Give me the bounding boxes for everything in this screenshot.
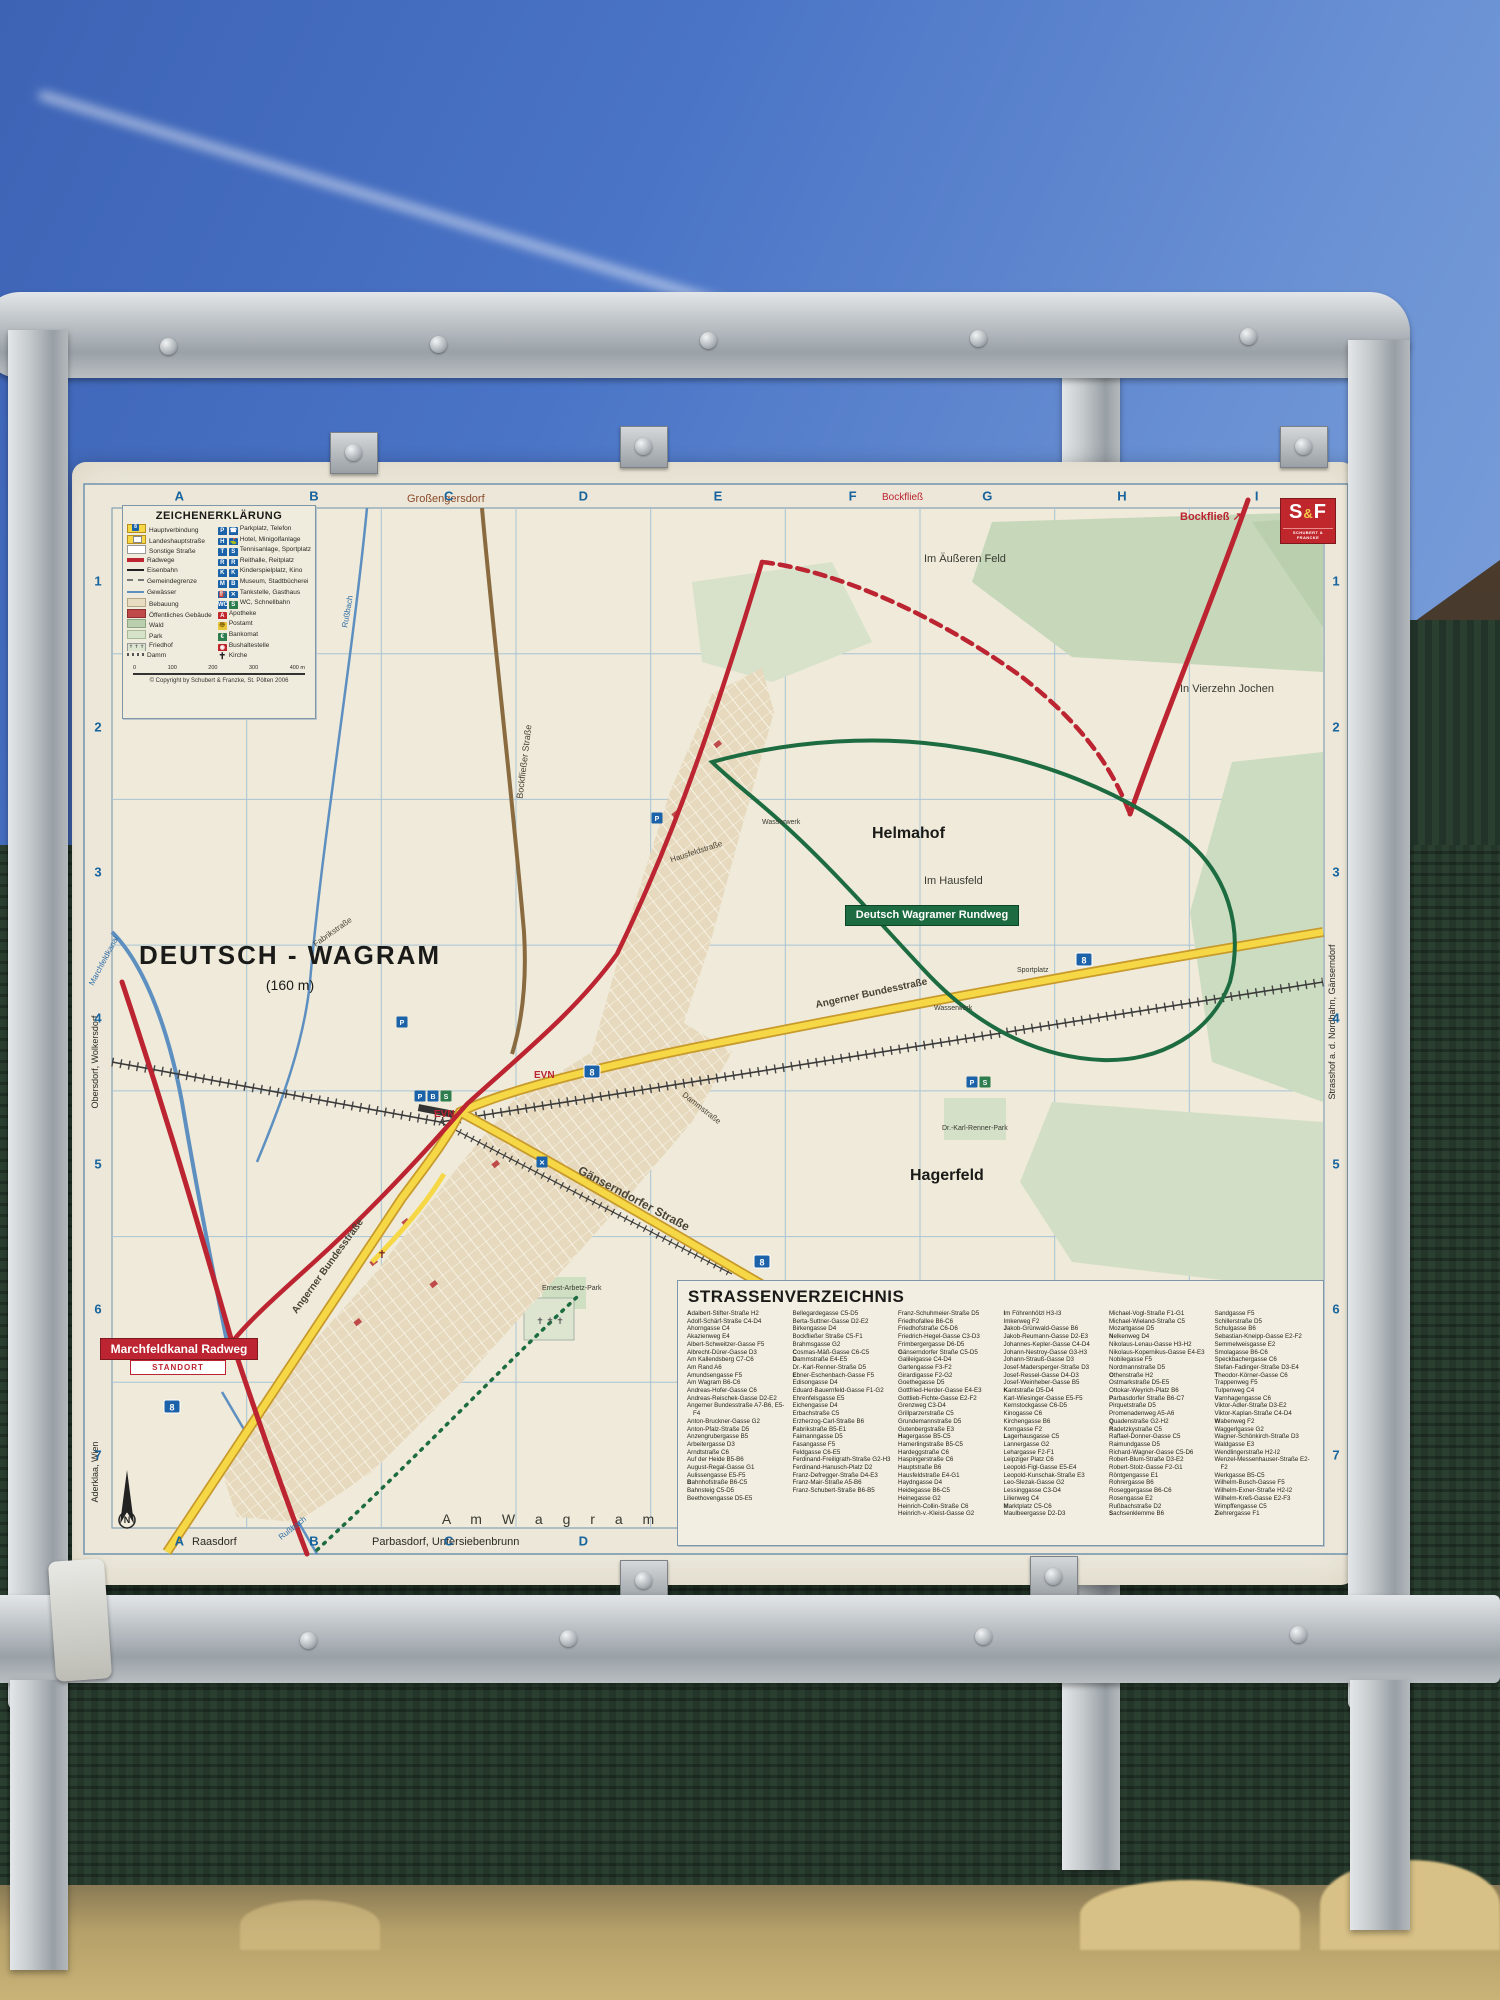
grid-label-7: 7 — [94, 1448, 101, 1463]
index-entry: Fasangasse F5 — [793, 1441, 893, 1449]
index-column: Bellegardegasse C5-D5Berta-Suttner-Gasse… — [790, 1310, 896, 1518]
poi-sportplatz: Sportplatz — [1017, 967, 1049, 974]
contrail — [37, 90, 766, 321]
index-entry: Grenzweg C3-D4 — [898, 1402, 998, 1410]
scale-tick: 200 — [208, 665, 217, 673]
index-entry: Franz-Schubert-Straße B6-B5 — [793, 1487, 893, 1495]
legend-item: Sonstige Straße — [127, 545, 218, 556]
bolt — [430, 336, 447, 353]
photo-of-map-sign: N 8888 PBSPPS✕P DEUTSCH - WAGRAM(160 m)H… — [0, 0, 1500, 2000]
index-entry: Marktplatz C5-C6 — [1004, 1503, 1104, 1511]
legend-item: Wald — [127, 619, 218, 630]
grid-label-5: 5 — [1332, 1156, 1339, 1171]
index-entry: Michael-Vogl-Straße F1-G1 — [1109, 1310, 1209, 1318]
index-entry: Gutenbergstraße E3 — [898, 1426, 998, 1434]
index-entry: Jakob-Grünwald-Gasse B6 — [1004, 1325, 1104, 1333]
district-helmahof: Helmahof — [872, 825, 946, 842]
index-entry: Erbachstraße C5 — [793, 1410, 893, 1418]
legend-icon: T — [218, 548, 227, 556]
grid-label-4: 4 — [94, 1011, 101, 1026]
index-entry: Radetzkystraße C5 — [1109, 1426, 1209, 1434]
index-entry: Am Wagram B6-C6 — [687, 1379, 787, 1387]
index-entry: Ostmarkstraße D5-E5 — [1109, 1379, 1209, 1387]
legend-icon: M — [218, 580, 227, 588]
legend-icon: € — [218, 633, 227, 641]
legend-icon: S — [229, 601, 238, 609]
index-entry: Gänserndorfer Straße C5-D5 — [898, 1349, 998, 1357]
index-entry: Rohrergasse B6 — [1109, 1479, 1209, 1487]
index-entry: Friedhofallee B6-C6 — [898, 1318, 998, 1326]
legend-icon: H — [218, 538, 227, 546]
index-entry: Ehrenfelsgasse E5 — [793, 1395, 893, 1403]
park-symbol — [127, 630, 146, 639]
fried-symbol — [127, 643, 146, 652]
legend-icon: R — [229, 559, 238, 567]
index-entry: Kirchengasse B6 — [1004, 1418, 1104, 1426]
grid-label-3: 3 — [1332, 865, 1339, 880]
index-entry: Josef-Weinheber-Gasse B5 — [1004, 1379, 1104, 1387]
index-entry: Franz-Mair-Straße A5-B6 — [793, 1479, 893, 1487]
sign-clamp — [620, 426, 668, 468]
grid-label-5: 5 — [94, 1156, 101, 1171]
index-entry: Roseggergasse B6-C6 — [1109, 1487, 1209, 1495]
index-entry: Heinegasse G2 — [898, 1495, 998, 1503]
index-entry: Birkengasse D4 — [793, 1325, 893, 1333]
legend-icon: R — [218, 559, 227, 567]
index-entry: Haydngasse D4 — [898, 1479, 998, 1487]
index-column: Im Föhrenhölzl H3-I3Imkerweg F2Jakob-Grü… — [1001, 1310, 1107, 1518]
damm-symbol — [127, 653, 144, 656]
index-entry: Gartengasse F3-F2 — [898, 1364, 998, 1372]
grid-label-E: E — [714, 489, 723, 504]
index-entry: Wilhelm-Exner-Straße H2-I2 — [1215, 1487, 1315, 1495]
other-symbol — [127, 545, 146, 554]
legend-icon: K — [229, 569, 238, 577]
frame-left-post-foot — [10, 1680, 68, 1970]
index-entry: Wimpffengasse C5 — [1215, 1503, 1315, 1511]
index-entry: Friedrich-Hegel-Gasse C3-D3 — [898, 1333, 998, 1341]
index-entry: Wenzel-Messenhauser-Straße E2-F2 — [1215, 1456, 1315, 1471]
legend-icon: 〠 — [218, 622, 227, 630]
index-entry: Am Kallendsberg C7-C6 — [687, 1356, 787, 1364]
index-entry: Rosengasse E2 — [1109, 1495, 1209, 1503]
legend-item: WCSWC, Schnellbahn — [218, 598, 311, 609]
index-entry: Wendlingerstraße H2-I2 — [1215, 1449, 1315, 1457]
index-entry: Anton-Pfalz-Straße D5 — [687, 1426, 787, 1434]
index-entry: Ottokar-Weyrich-Platz B6 — [1109, 1387, 1209, 1395]
grid-label-6: 6 — [94, 1302, 101, 1317]
index-entry: Angerner Bundesstraße A7-B6, E5-F4 — [687, 1402, 787, 1417]
index-entry: Haspingerstraße C6 — [898, 1456, 998, 1464]
index-entry: Galileigasse C4-D4 — [898, 1356, 998, 1364]
index-entry: Sachsenklemme B6 — [1109, 1510, 1209, 1518]
index-entry: Aulissengasse E5-F5 — [687, 1472, 787, 1480]
poi-icon-glyph: P — [655, 816, 660, 823]
grid-label-I: I — [1255, 489, 1259, 504]
index-entry: Anzengrubergasse B5 — [687, 1433, 787, 1441]
grid-label-2: 2 — [94, 719, 101, 734]
bolt — [1290, 1626, 1307, 1643]
index-entry: Albrecht-Dürer-Gasse D3 — [687, 1349, 787, 1357]
index-entry: Anton-Bruckner-Gasse G2 — [687, 1418, 787, 1426]
poi-icon-glyph: S — [444, 1094, 449, 1101]
index-entry: Akazienweg E4 — [687, 1333, 787, 1341]
index-entry: Raffael-Donner-Gasse C5 — [1109, 1433, 1209, 1441]
legend-icon: ⛳ — [229, 538, 238, 546]
index-entry: Eichengasse D4 — [793, 1402, 893, 1410]
index-entry: Girardigasse F2-G2 — [898, 1372, 998, 1380]
grid-label-D: D — [579, 1534, 588, 1549]
index-entry: Werkgasse B5-C5 — [1215, 1472, 1315, 1480]
legend-box: ZEICHENERKLÄRUNG HauptverbindungLandesha… — [122, 505, 316, 719]
beb-symbol — [127, 598, 146, 607]
grid-label-A: A — [175, 489, 184, 504]
poi-icon-glyph: ✕ — [539, 1160, 545, 1167]
wat-symbol — [127, 591, 144, 593]
sign-clamp — [1280, 426, 1328, 468]
frame-left-post — [8, 330, 68, 1710]
index-entry: Andreas-Hofer-Gasse C6 — [687, 1387, 787, 1395]
legend-item: Öffentliches Gebäude — [127, 609, 218, 620]
wald-symbol — [127, 619, 146, 628]
frame-right-post-foot — [1350, 1680, 1410, 1930]
index-entry: Cosmas-Mäß-Gasse C6-C5 — [793, 1349, 893, 1357]
index-entry: Nikolaus-Lenau-Gasse H3-H2 — [1109, 1341, 1209, 1349]
bolt — [560, 1630, 577, 1647]
grid-label-A: A — [175, 1534, 184, 1549]
legend-item: Bebauung — [127, 598, 218, 609]
index-entry: Hausfeldstraße E4-G1 — [898, 1472, 998, 1480]
copyright-note: © Copyright by Schubert & Franzke, St. P… — [123, 678, 315, 684]
legend-item: Damm — [127, 651, 218, 662]
index-entry: Dammstraße E4-E5 — [793, 1356, 893, 1364]
rail-symbol — [127, 569, 144, 571]
town-title: DEUTSCH - WAGRAM — [139, 940, 441, 970]
marchfeldkanal-radweg-badge: Marchfeldkanal Radweg — [100, 1338, 258, 1360]
index-entry: Gottfried-Herder-Gasse E4-E3 — [898, 1387, 998, 1395]
index-column: Franz-Schuhmeier-Straße D5Friedhofallee … — [895, 1310, 1001, 1518]
poi-icon-glyph: P — [970, 1080, 975, 1087]
road-shield-number: 8 — [1081, 956, 1086, 966]
index-entry: Sebastian-Kneipp-Gasse E2-F2 — [1215, 1333, 1315, 1341]
index-entry: Grundemannstraße D5 — [898, 1418, 998, 1426]
index-entry: Raimundgasse D5 — [1109, 1441, 1209, 1449]
index-entry: Johann-Nestroy-Gasse G3-H3 — [1004, 1349, 1104, 1357]
poi-karl-renner-park: Dr.-Karl-Renner-Park — [942, 1125, 1008, 1132]
index-entry: Frimbergergasse D6-D5 — [898, 1341, 998, 1349]
poi-wasserwerk-2: Wasserwerk — [934, 1005, 973, 1012]
index-entry: Ziehrergasse F1 — [1215, 1510, 1315, 1518]
grid-label-C: C — [444, 1534, 453, 1549]
index-entry: Johann-Strauß-Gasse D3 — [1004, 1356, 1104, 1364]
index-entry: Heidegasse B6-C5 — [898, 1487, 998, 1495]
index-entry: Auf der Heide B5-B6 — [687, 1456, 787, 1464]
poi-ernest-arbetz-park: Ernest-Arbetz-Park — [542, 1285, 602, 1292]
poi-icon-glyph: P — [400, 1020, 405, 1027]
bolt — [700, 332, 717, 349]
legend-item: Gemeindegrenze — [127, 577, 218, 588]
publisher-logo: S&F SCHUBERT & FRANCKE — [1280, 498, 1336, 544]
index-entry: Röntgengasse E1 — [1109, 1472, 1209, 1480]
index-entry: Viktor-Kaplan-Straße C4-D4 — [1215, 1410, 1315, 1418]
index-entry: Sandgasse F5 — [1215, 1310, 1315, 1318]
index-entry: Amundsengasse F5 — [687, 1372, 787, 1380]
poi-evn-1: EVN — [534, 1070, 555, 1081]
index-entry: Franz-Schuhmeier-Straße D5 — [898, 1310, 998, 1318]
area-in-vierzehn-jochen: In Vierzehn Jochen — [1180, 683, 1274, 695]
index-entry: Friedhofstraße C6-D6 — [898, 1325, 998, 1333]
grid-label-1: 1 — [1332, 573, 1339, 588]
street-index-title: STRASSENVERZEICHNIS — [688, 1287, 1313, 1307]
index-entry: Promenadenweg A5-A6 — [1109, 1410, 1209, 1418]
grid-label-F: F — [849, 489, 857, 504]
grass-tuft — [240, 1900, 380, 1950]
poi-icon-glyph: S — [983, 1080, 988, 1087]
index-entry: Hardeggstraße C6 — [898, 1449, 998, 1457]
legend-item: 〠Postamt — [218, 619, 311, 630]
legend-icon: WC — [218, 601, 227, 609]
index-entry: Josef-Madersperger-Straße D3 — [1004, 1364, 1104, 1372]
legend-left-column: HauptverbindungLandeshauptstraßeSonstige… — [127, 524, 218, 662]
index-entry: Josef-Ressel-Gasse D4-D3 — [1004, 1372, 1104, 1380]
index-entry: Michael-Wieland-Straße C5 — [1109, 1318, 1209, 1326]
index-entry: Am Rand A6 — [687, 1364, 787, 1372]
bolt — [975, 1628, 992, 1645]
index-entry: Adolf-Schärf-Straße C4-D4 — [687, 1318, 787, 1326]
poi-kirche-cross: ✝ — [377, 1249, 386, 1261]
legend-item: MBMuseum, Stadtbücherei — [218, 577, 311, 588]
grid-label-D: D — [579, 489, 588, 504]
index-entry: Speckbachergasse C6 — [1215, 1356, 1315, 1364]
rundweg-badge: Deutsch Wagramer Rundweg — [845, 905, 1019, 926]
index-entry: Brahmsgasse G2 — [793, 1341, 893, 1349]
index-entry: Leipziger Platz C6 — [1004, 1456, 1104, 1464]
scale-tick: 300 — [249, 665, 258, 673]
legend-item: AApotheke — [218, 609, 311, 620]
index-entry: Hagergasse B5-C5 — [898, 1433, 998, 1441]
district-hagerfeld: Hagerfeld — [910, 1167, 984, 1184]
legend-right-column: P☎Parkplatz, TelefonH⛳Hotel, Minigolfanl… — [218, 524, 311, 662]
grid-label-B: B — [309, 1534, 318, 1549]
grid-label-4: 4 — [1332, 1011, 1339, 1026]
index-entry: Wilhelm-Busch-Gasse F5 — [1215, 1479, 1315, 1487]
index-entry: Nordmannstraße D5 — [1109, 1364, 1209, 1372]
index-entry: Feldgasse C6-E5 — [793, 1449, 893, 1457]
legend-icon: B — [229, 580, 238, 588]
index-entry: Beethovengasse D5-E5 — [687, 1495, 787, 1503]
legend-icon: ◉ — [218, 644, 227, 652]
index-entry: Pirquetstraße D5 — [1109, 1402, 1209, 1410]
index-column: Sandgasse F5Schillerstraße D5Schulgasse … — [1212, 1310, 1318, 1518]
scale-tick: 400 m — [290, 665, 305, 673]
bolt — [1240, 328, 1257, 345]
index-entry: Lessinggasse C3-D4 — [1004, 1487, 1104, 1495]
sign-clamp — [330, 432, 378, 474]
legend-item: Landeshauptstraße — [127, 535, 218, 546]
index-entry: Theodor-Körner-Gasse C6 — [1215, 1372, 1315, 1380]
lh-symbol — [127, 535, 146, 544]
index-entry: August-Regal-Gasse G1 — [687, 1464, 787, 1472]
index-entry: Kantstraße D5-D4 — [1004, 1387, 1104, 1395]
index-entry: Andreas-Reischek-Gasse D2-E2 — [687, 1395, 787, 1403]
grass-tuft — [1080, 1880, 1300, 1950]
bolt — [970, 330, 987, 347]
area-am-wagram: A m W a g r a m — [442, 1511, 662, 1527]
index-entry: Jakob-Reumann-Gasse D2-E3 — [1004, 1333, 1104, 1341]
street-index-columns: Adalbert-Stifter-Straße H2Adolf-Schärf-S… — [678, 1310, 1323, 1518]
index-entry: Bockfließer Straße C5-F1 — [793, 1333, 893, 1341]
index-entry: Gottlieb-Fichte-Gasse E2-F2 — [898, 1395, 998, 1403]
legend-item: P☎Parkplatz, Telefon — [218, 524, 311, 535]
grid-label-6: 6 — [1332, 1302, 1339, 1317]
index-entry: Schillerstraße D5 — [1215, 1318, 1315, 1326]
dest-bockfliess-ne: Bockfließ ↗ — [1180, 511, 1242, 523]
index-entry: Korngasse F2 — [1004, 1426, 1104, 1434]
legend-item: RRReithalle, Reitplatz — [218, 556, 311, 567]
index-entry: Nelkenweg D4 — [1109, 1333, 1209, 1341]
index-entry: Wagner-Schönkirch-Straße D3 — [1215, 1433, 1315, 1441]
white-wrap-on-post — [48, 1558, 112, 1682]
index-entry: Wilhelm-Kreß-Gasse E2-F3 — [1215, 1495, 1315, 1503]
index-entry: Ebner-Eschenbach-Gasse F5 — [793, 1372, 893, 1380]
index-entry: Bellegardegasse C5-D5 — [793, 1310, 893, 1318]
legend-icon: ⛽ — [218, 591, 227, 599]
index-entry: Lilienweg C4 — [1004, 1495, 1104, 1503]
legend-item: KKKinderspielplatz, Kino — [218, 566, 311, 577]
scale-tick: 0 — [133, 665, 136, 673]
main-symbol — [127, 524, 146, 533]
legend-item: Friedhof — [127, 641, 218, 652]
index-entry: Goethegasse D5 — [898, 1379, 998, 1387]
index-entry: Richard-Wagner-Gasse C5-D6 — [1109, 1449, 1209, 1457]
index-entry: Ferdinand-Freiligrath-Straße G2-H3 — [793, 1456, 893, 1464]
index-entry: Robert-Blum-Straße D3-E2 — [1109, 1456, 1209, 1464]
index-entry: Karl-Wiesinger-Gasse E5-F5 — [1004, 1395, 1104, 1403]
index-entry: Erzherzog-Carl-Straße B6 — [793, 1418, 893, 1426]
pub-symbol — [127, 609, 146, 618]
road-shield-number: 8 — [169, 1403, 174, 1413]
index-entry: Ferdinand-Hanusch-Platz D2 — [793, 1464, 893, 1472]
legend-item: H⛳Hotel, Minigolfanlage — [218, 535, 311, 546]
map-sign-board: N 8888 PBSPPS✕P DEUTSCH - WAGRAM(160 m)H… — [72, 462, 1355, 1585]
index-entry: Quadenstraße G2-H2 — [1109, 1418, 1209, 1426]
grid-label-2: 2 — [1332, 719, 1339, 734]
index-entry: Tulpenweg C4 — [1215, 1387, 1315, 1395]
frame-right-post — [1348, 340, 1410, 1710]
legend-item: ⛽✕Tankstelle, Gasthaus — [218, 588, 311, 599]
index-entry: Edisongasse D4 — [793, 1379, 893, 1387]
index-entry: Nikolaus-Kopernikus-Gasse E4-E3 — [1109, 1349, 1209, 1357]
index-entry: Nobilegasse F5 — [1109, 1356, 1209, 1364]
frame-bottom-bar — [0, 1595, 1500, 1683]
index-entry: Grillparzerstraße C5 — [898, 1410, 998, 1418]
grid-label-3: 3 — [94, 865, 101, 880]
poi-wasserwerk-1: Wasserwerk — [762, 819, 801, 826]
index-entry: Albert-Schweitzer-Gasse F5 — [687, 1341, 787, 1349]
index-entry: Rußbachstraße D2 — [1109, 1503, 1209, 1511]
sign-clamp — [1030, 1556, 1078, 1598]
poi-evn-2: EVN — [434, 1109, 455, 1120]
index-entry: Berta-Suttner-Gasse D2-E2 — [793, 1318, 893, 1326]
road-shield-number: 8 — [759, 1258, 764, 1268]
grid-label-C: C — [444, 489, 453, 504]
legend-item: €Bankomat — [218, 630, 311, 641]
area-im-hausfeld: Im Hausfeld — [924, 875, 983, 887]
legend-icon: ☎ — [229, 527, 238, 535]
legend-icon: A — [218, 612, 227, 620]
index-entry: Heinrich-v.-Kleist-Gasse G2 — [898, 1510, 998, 1518]
grid-label-B: B — [309, 489, 318, 504]
index-entry: Maulbeergasse D2-D3 — [1004, 1510, 1104, 1518]
index-entry: Lagerhausgasse C5 — [1004, 1433, 1104, 1441]
legend-item: Hauptverbindung — [127, 524, 218, 535]
legend-item: TSTennisanlage, Sportplatz — [218, 545, 311, 556]
scale-bar: 0100200300400 m — [133, 665, 305, 675]
index-entry: Othenstraße H2 — [1109, 1372, 1209, 1380]
index-entry: Waggerlgasse G2 — [1215, 1426, 1315, 1434]
index-column: Michael-Vogl-Straße F1-G1Michael-Wieland… — [1106, 1310, 1212, 1518]
road-shield-number: 8 — [589, 1068, 594, 1078]
index-entry: Wabenweg F2 — [1215, 1418, 1315, 1426]
rad-symbol — [127, 558, 144, 562]
standort-badge: STANDORT — [130, 1360, 226, 1375]
legend-item: Eisenbahn — [127, 566, 218, 577]
grid-label-G: G — [982, 489, 992, 504]
index-entry: Stefan-Fadinger-Straße D3-E4 — [1215, 1364, 1315, 1372]
legend-title: ZEICHENERKLÄRUNG — [123, 510, 315, 522]
index-entry: Semmelweisgasse E2 — [1215, 1341, 1315, 1349]
index-entry: Ahorngasse C4 — [687, 1325, 787, 1333]
index-entry: Hamerlingstraße B5-C5 — [898, 1441, 998, 1449]
legend-item: ◉Bushaltestelle — [218, 641, 311, 652]
index-entry: Mozartgasse D5 — [1109, 1325, 1209, 1333]
index-entry: Kinogasse C6 — [1004, 1410, 1104, 1418]
legend-item: Radwege — [127, 556, 218, 567]
grid-numbers-right: 1234567 — [1324, 508, 1348, 1528]
index-entry: Hauptstraße B6 — [898, 1464, 998, 1472]
grid-label-7: 7 — [1332, 1448, 1339, 1463]
index-entry: Smolagasse B6-C6 — [1215, 1349, 1315, 1357]
index-entry: Franz-Defregger-Straße D4-E3 — [793, 1472, 893, 1480]
legend-icon: P — [218, 527, 227, 535]
legend-item: Park — [127, 630, 218, 641]
publisher-logo-letters: S&F — [1281, 499, 1335, 527]
index-entry: Faimanngasse D5 — [793, 1433, 893, 1441]
grass-tuft — [1320, 1860, 1500, 1950]
poi-icon-glyph: B — [430, 1094, 435, 1101]
index-entry: Johannes-Kepler-Gasse C4-D4 — [1004, 1341, 1104, 1349]
index-entry: Eduard-Bauernfeld-Gasse F1-G2 — [793, 1387, 893, 1395]
legend-icon: S — [229, 548, 238, 556]
legend-item: ✝Kirche — [218, 651, 311, 662]
index-entry: Viktor-Adler-Straße D3-E2 — [1215, 1402, 1315, 1410]
index-entry: Bahnhofstraße B6-C5 — [687, 1479, 787, 1487]
svg-text:N: N — [124, 1515, 131, 1525]
index-entry: Varnhagengasse C6 — [1215, 1395, 1315, 1403]
index-entry: Imkerweg F2 — [1004, 1318, 1104, 1326]
legend-icon: K — [218, 569, 227, 577]
legend-icon: ✕ — [229, 591, 238, 599]
publisher-name: SCHUBERT & FRANCKE — [1283, 528, 1333, 540]
index-entry: Schulgasse B6 — [1215, 1325, 1315, 1333]
street-index-box: STRASSENVERZEICHNIS Adalbert-Stifter-Str… — [677, 1280, 1324, 1546]
grid-numbers-left: 1234567 — [84, 508, 112, 1528]
index-entry: Adalbert-Stifter-Straße H2 — [687, 1310, 787, 1318]
legend-item: Gewässer — [127, 588, 218, 599]
index-entry: Waldgasse E3 — [1215, 1441, 1315, 1449]
gem-symbol — [127, 579, 144, 581]
index-entry: Trappenweg F5 — [1215, 1379, 1315, 1387]
